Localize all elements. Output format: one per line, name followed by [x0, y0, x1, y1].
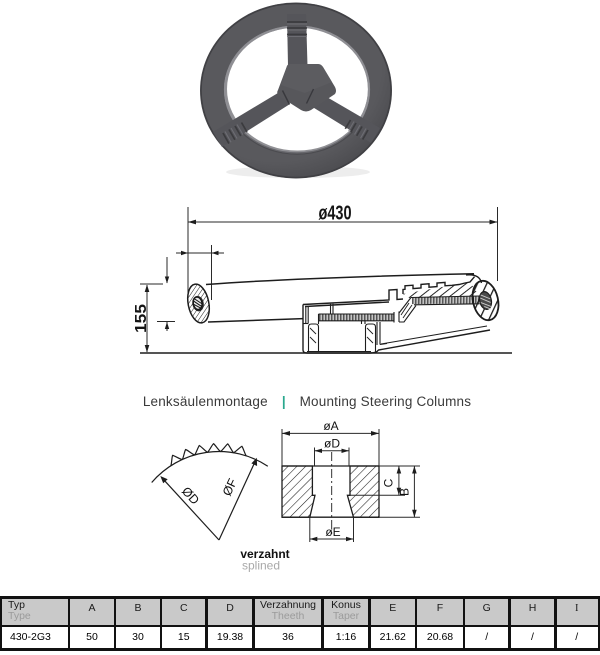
svg-text:splined: splined — [242, 559, 280, 573]
svg-text:C: C — [382, 478, 396, 487]
svg-text:ØF: ØF — [220, 476, 240, 498]
svg-text:155: 155 — [133, 304, 150, 333]
svg-text:ø430: ø430 — [319, 203, 352, 225]
svg-text:øD: øD — [324, 437, 340, 451]
svg-text:øA: øA — [323, 419, 338, 433]
svg-text:øE: øE — [325, 525, 340, 539]
svg-text:ØD: ØD — [179, 484, 202, 507]
svg-text:B: B — [398, 488, 412, 496]
